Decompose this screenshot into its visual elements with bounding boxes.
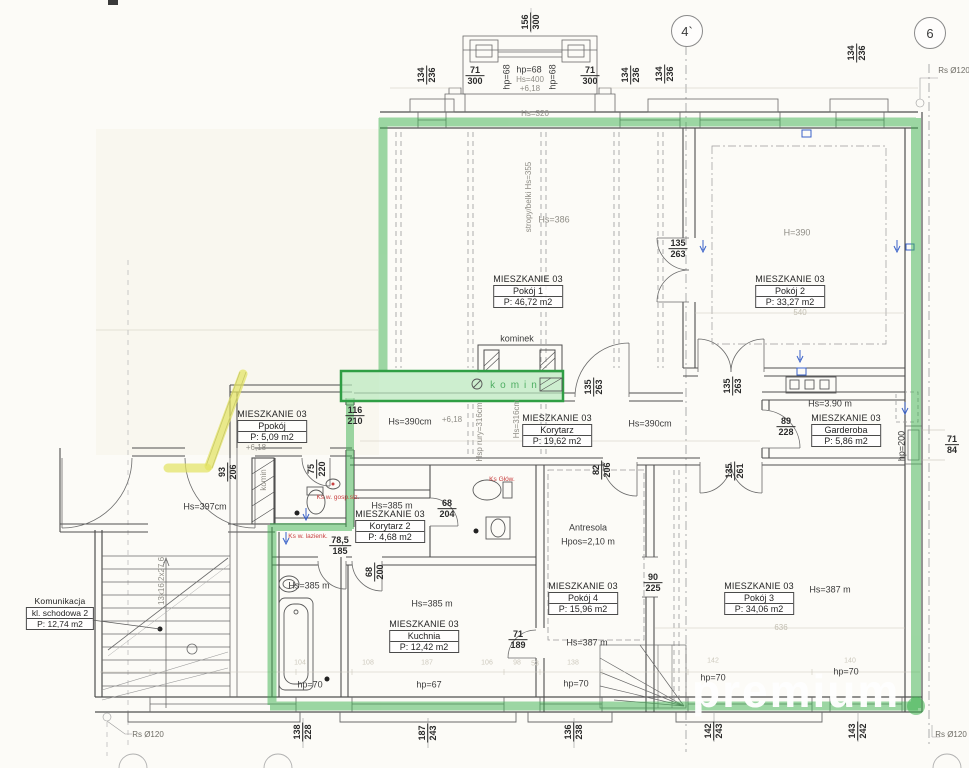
dimension-label: 71189 [508, 629, 527, 651]
annotation: 187 [421, 660, 433, 667]
annotation: Rs Ø120 [132, 731, 164, 739]
annotation: Hs=390cm [388, 418, 431, 427]
watermark: premium [692, 664, 900, 718]
dimension-label: 75220 [306, 459, 328, 478]
annotation: hp=68 [516, 66, 541, 75]
annotation: Hs=390cm [628, 420, 671, 429]
scan-mark [108, 0, 118, 5]
annotation: Hs=320 [521, 110, 549, 118]
dimension-label: 90225 [643, 572, 662, 594]
grid-bubble-6: 6 [914, 17, 946, 49]
dimension-label: 138228 [292, 722, 314, 741]
annotation: Hs=387 m [566, 639, 607, 648]
red-note: Ks w. lazienk. [288, 534, 327, 541]
dimension-label: 134236 [620, 65, 642, 84]
annotation: 106 [481, 660, 493, 667]
annotation: hp=70 [563, 680, 588, 689]
room-label-komunikacja: Komunikacja kl. schodowa 2P: 12,74 m2 [26, 596, 94, 630]
room-label-pokoj4: MIESZKANIE 03 Pokój 4P: 15,96 m2 [548, 581, 618, 615]
annotation: hp=68 [503, 64, 512, 89]
room-label-pokoj3: MIESZKANIE 03 Pokój 3P: 34,06 m2 [724, 581, 794, 615]
annotation: 13x16,2x27,6 [158, 557, 166, 605]
dimension-label: 135263 [583, 377, 605, 396]
annotation: Hs=387 m [809, 586, 850, 595]
room-label-korytarz: MIESZKANIE 03 KorytarzP: 19,62 m2 [522, 413, 592, 447]
annotation: 53 [531, 661, 539, 668]
dimension-label: 89228 [776, 416, 795, 438]
room-label-pokoj1: MIESZKANIE 03 Pokój 1P: 46,72 m2 [493, 274, 563, 308]
annotation: 108 [362, 660, 374, 667]
annotation: Hs=400 [516, 76, 544, 84]
red-note: Ks Głów. [489, 477, 515, 484]
annotation: Hsp rury=316cm [476, 403, 484, 462]
dimension-label: 82206 [591, 460, 613, 479]
antresola-note: Antresola Hpos=2,10 m [561, 522, 615, 549]
bottom-grid-bubbles [119, 754, 961, 768]
dimension-label: 7184 [945, 434, 959, 456]
annotation: Hs=385 m [288, 582, 329, 591]
dimension-label: 136238 [563, 722, 585, 741]
annotation: hp=68 [549, 64, 558, 89]
annotation: 540 [793, 309, 806, 317]
dimension-label: 78,5185 [329, 535, 351, 557]
annotation: hp=67 [416, 681, 441, 690]
annotation: komin [260, 469, 268, 490]
annotation: H=390 [784, 229, 811, 238]
dimension-label: 135263 [722, 376, 744, 395]
dimension-label: 71300 [465, 65, 484, 87]
cabinet [786, 377, 836, 393]
dimension-label: 143242 [847, 721, 869, 740]
annotation: hp=200 [898, 431, 907, 461]
annotation: 98 [513, 660, 521, 667]
dimension-label: 116210 [345, 405, 364, 427]
staircase-winder [600, 645, 686, 708]
dimension-label: 71300 [580, 65, 599, 87]
annotation: 138 [567, 660, 579, 667]
dimension-label: 135263 [668, 238, 687, 260]
dimension-label: 68200 [364, 562, 386, 581]
floorplan-linework [0, 0, 969, 768]
annotation: +6,18 [246, 444, 266, 452]
dimension-label: 187243 [417, 723, 439, 742]
annotation: Hs=3.90 m [808, 400, 852, 409]
red-note: Ks w. gosp.siz. [317, 495, 360, 502]
annotation: Hs=385 m [411, 600, 452, 609]
dimension-label: 142243 [703, 721, 725, 740]
room-label-pokoj2: MIESZKANIE 03 Pokój 2P: 33,27 m2 [755, 274, 825, 308]
room-label-kuchnia: MIESZKANIE 03 KuchniaP: 12,42 m2 [389, 619, 459, 653]
dimension-label: 134236 [654, 64, 676, 83]
annotation: +6,18 [520, 85, 540, 93]
room-label-korytarz2: MIESZKANIE 03 Korytarz 2P: 4,68 m2 [355, 509, 425, 543]
dimension-label: 68204 [437, 498, 456, 520]
annotation: 104 [294, 660, 306, 667]
floorplan-page: 4` 6 MIESZKANIE 03 Pokój 1P: 46,72 m2 MI… [0, 0, 969, 768]
dimension-label: 134236 [416, 65, 438, 84]
annotation: Hs=397cm [183, 503, 226, 512]
grid-bubble-4: 4` [671, 15, 703, 47]
annotation: stropy/belki Hs=355 [525, 162, 533, 232]
dimension-label: 134236 [846, 43, 868, 62]
annotation: Rs Ø120 [935, 731, 967, 739]
komin-highlight-label: komin [490, 381, 542, 391]
annotation: +6,18 [442, 416, 462, 424]
annotation: 636 [774, 624, 787, 632]
dimension-label: 156300 [520, 12, 542, 31]
annotation: Hs=316cm [513, 400, 521, 438]
annotation: Hs=386 [538, 216, 569, 225]
staircase-left [102, 448, 237, 708]
annotation: Rs Ø120 [938, 67, 969, 75]
room-label-ppokoj: MIESZKANIE 03 PpokójP: 5,09 m2 [237, 409, 307, 443]
annotation: hp=70 [297, 681, 322, 690]
dimension-label: 135261 [724, 461, 746, 480]
dimension-label: 93206 [217, 462, 239, 481]
room-label-garderoba: MIESZKANIE 03 GarderobaP: 5,86 m2 [811, 413, 881, 447]
annotation: kominek [500, 335, 534, 344]
